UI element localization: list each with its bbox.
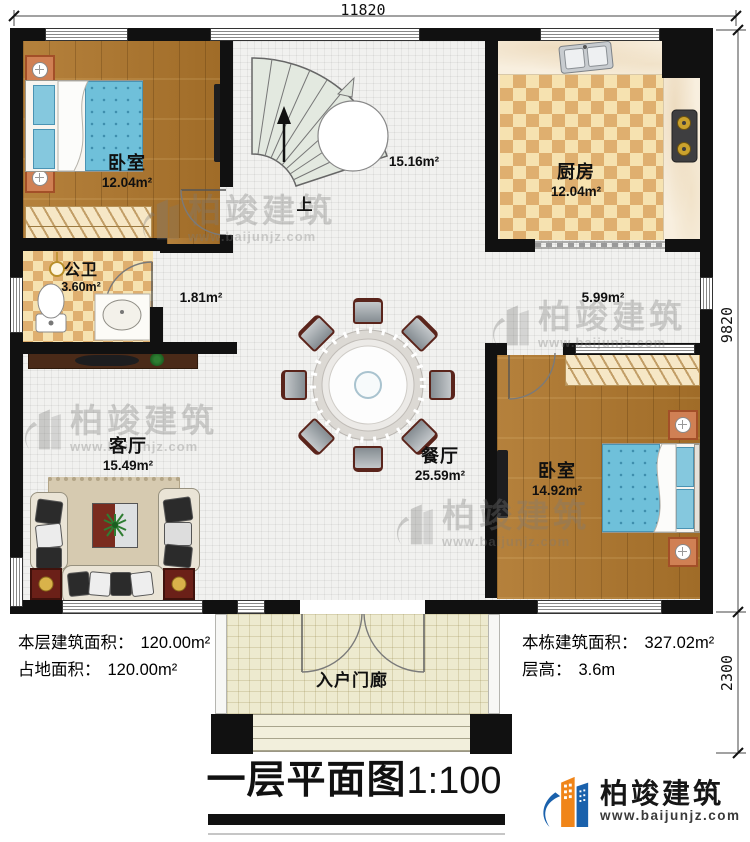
wall: [662, 28, 700, 78]
room-label-dining: 餐厅 25.59m²: [385, 446, 495, 484]
kitchen-counter-right: [663, 75, 700, 240]
height-value: 3.6m: [579, 661, 616, 679]
porch-sidewall-right: [488, 614, 500, 714]
plan-title-text: 一层平面图: [206, 759, 406, 802]
plan-title: 一层平面图1:100: [203, 749, 505, 805]
room-area: 12.04m²: [72, 175, 182, 191]
porch-steps: [227, 714, 488, 752]
cushion: [110, 572, 132, 596]
plant-icon: [150, 353, 164, 366]
dining-chair: [353, 446, 383, 472]
area-label-hall: 15.16m²: [364, 154, 464, 170]
room-name: 餐厅: [385, 446, 495, 468]
room-area: 25.59m²: [385, 468, 495, 484]
dimension-right-upper: 9820: [718, 295, 736, 355]
porch-floor: [227, 614, 488, 715]
wardrobe: [565, 350, 700, 386]
cushion: [36, 547, 62, 569]
window: [575, 344, 695, 354]
room-label-bedroom1: 卧室 12.04m²: [72, 153, 182, 191]
window: [237, 600, 265, 614]
dining-chair: [281, 370, 307, 400]
window: [210, 28, 420, 41]
tv-icon: [75, 355, 139, 366]
window: [10, 277, 23, 333]
area-label-corridor: 5.99m²: [553, 290, 653, 306]
room-name: 厨房: [521, 162, 631, 184]
pillow: [33, 85, 55, 125]
up-text: 上: [296, 197, 313, 214]
room-name: 卧室: [502, 461, 612, 483]
wall: [160, 244, 233, 253]
room-area: 15.49m²: [73, 458, 183, 474]
room-label-kitchen: 厨房 12.04m²: [521, 162, 631, 200]
total-area-label: 本栋建筑面积：: [522, 634, 638, 652]
pillow: [33, 129, 55, 169]
window: [45, 28, 128, 41]
brand-logo: 柏竣建筑 www.baijunjz.com: [538, 772, 741, 830]
room-area: 3.60m²: [26, 280, 136, 295]
kitchen-tiles: [500, 75, 663, 240]
lamp-icon: [675, 544, 691, 560]
dimension-top: 11820: [313, 1, 413, 19]
wall: [150, 307, 163, 344]
porch-sidewall-left: [215, 614, 227, 714]
floor-area-label: 本层建筑面积：: [18, 634, 134, 652]
room-name: 公卫: [26, 261, 136, 280]
dining-chair: [429, 370, 455, 400]
window: [700, 277, 713, 310]
window: [537, 600, 662, 614]
cushion: [34, 498, 63, 525]
lamp-icon: [32, 170, 48, 186]
info-block-left: 本层建筑面积：120.00m² 占地面积：120.00m²: [18, 630, 210, 683]
nightstand: [668, 537, 698, 567]
footprint-line: 占地面积：120.00m²: [18, 657, 210, 684]
nightstand: [668, 410, 698, 440]
window: [540, 28, 660, 41]
cushion: [164, 522, 192, 546]
room-name: 卧室: [72, 153, 182, 175]
side-table: [30, 568, 62, 600]
footprint-value: 120.00m²: [108, 661, 178, 679]
plan-title-scale: 1:100: [406, 760, 501, 802]
stairs-up-label: 上: [290, 196, 320, 215]
area-label-nook: 1.81m²: [151, 290, 251, 306]
pillow: [676, 489, 694, 529]
footprint-label: 占地面积：: [18, 661, 101, 679]
side-table: [163, 568, 195, 600]
room-label-bedroom2: 卧室 14.92m²: [502, 461, 612, 499]
room-label-bathroom: 公卫 3.60m²: [26, 261, 136, 295]
porch-pillar-right: [470, 714, 512, 754]
wall: [10, 238, 167, 251]
lamp-icon: [675, 417, 691, 433]
room-label-porch: 入户门廊: [302, 671, 402, 691]
dimension-right-lower: 2300: [718, 643, 736, 703]
cushion: [163, 544, 193, 569]
cushion: [162, 496, 193, 524]
wall: [485, 41, 498, 252]
cushion: [130, 571, 155, 598]
coffee-table: [92, 503, 138, 548]
brand-name: 柏竣建筑: [600, 779, 741, 808]
room-area: 14.92m²: [502, 483, 612, 499]
porch-pillar-left: [211, 714, 253, 754]
wall: [220, 41, 233, 187]
wall: [665, 239, 713, 252]
cushion: [88, 571, 112, 597]
title-underline-thin: [208, 833, 505, 835]
pillow: [676, 447, 694, 487]
total-area-line: 本栋建筑面积：327.02m²: [522, 630, 714, 657]
floor-area-value: 120.00m²: [141, 634, 211, 652]
window: [62, 600, 203, 614]
cushion: [35, 523, 63, 550]
room-name: 客厅: [73, 436, 183, 458]
brand-url: www.baijunjz.com: [600, 808, 741, 823]
floor-plan: 柏竣建筑www.baijunjz.com 柏竣建筑www.baijunjz.co…: [0, 0, 750, 842]
brand-logo-icon: [538, 772, 592, 830]
wall: [485, 239, 535, 252]
lamp-icon: [32, 62, 48, 78]
info-block-right: 本栋建筑面积：327.02m² 层高：3.6m: [522, 630, 714, 683]
title-underline: [208, 814, 505, 825]
porch-door-opening: [300, 600, 425, 614]
height-label: 层高：: [522, 661, 572, 679]
room-area: 12.04m²: [521, 184, 631, 200]
wall: [700, 28, 713, 614]
wall: [10, 342, 237, 354]
height-line: 层高：3.6m: [522, 657, 714, 684]
floor-area-line: 本层建筑面积：120.00m²: [18, 630, 210, 657]
total-area-value: 327.02m²: [645, 634, 715, 652]
window: [10, 557, 23, 607]
room-name: 入户门廊: [302, 671, 402, 691]
dining-chair: [353, 298, 383, 324]
room-label-living: 客厅 15.49m²: [73, 436, 183, 474]
